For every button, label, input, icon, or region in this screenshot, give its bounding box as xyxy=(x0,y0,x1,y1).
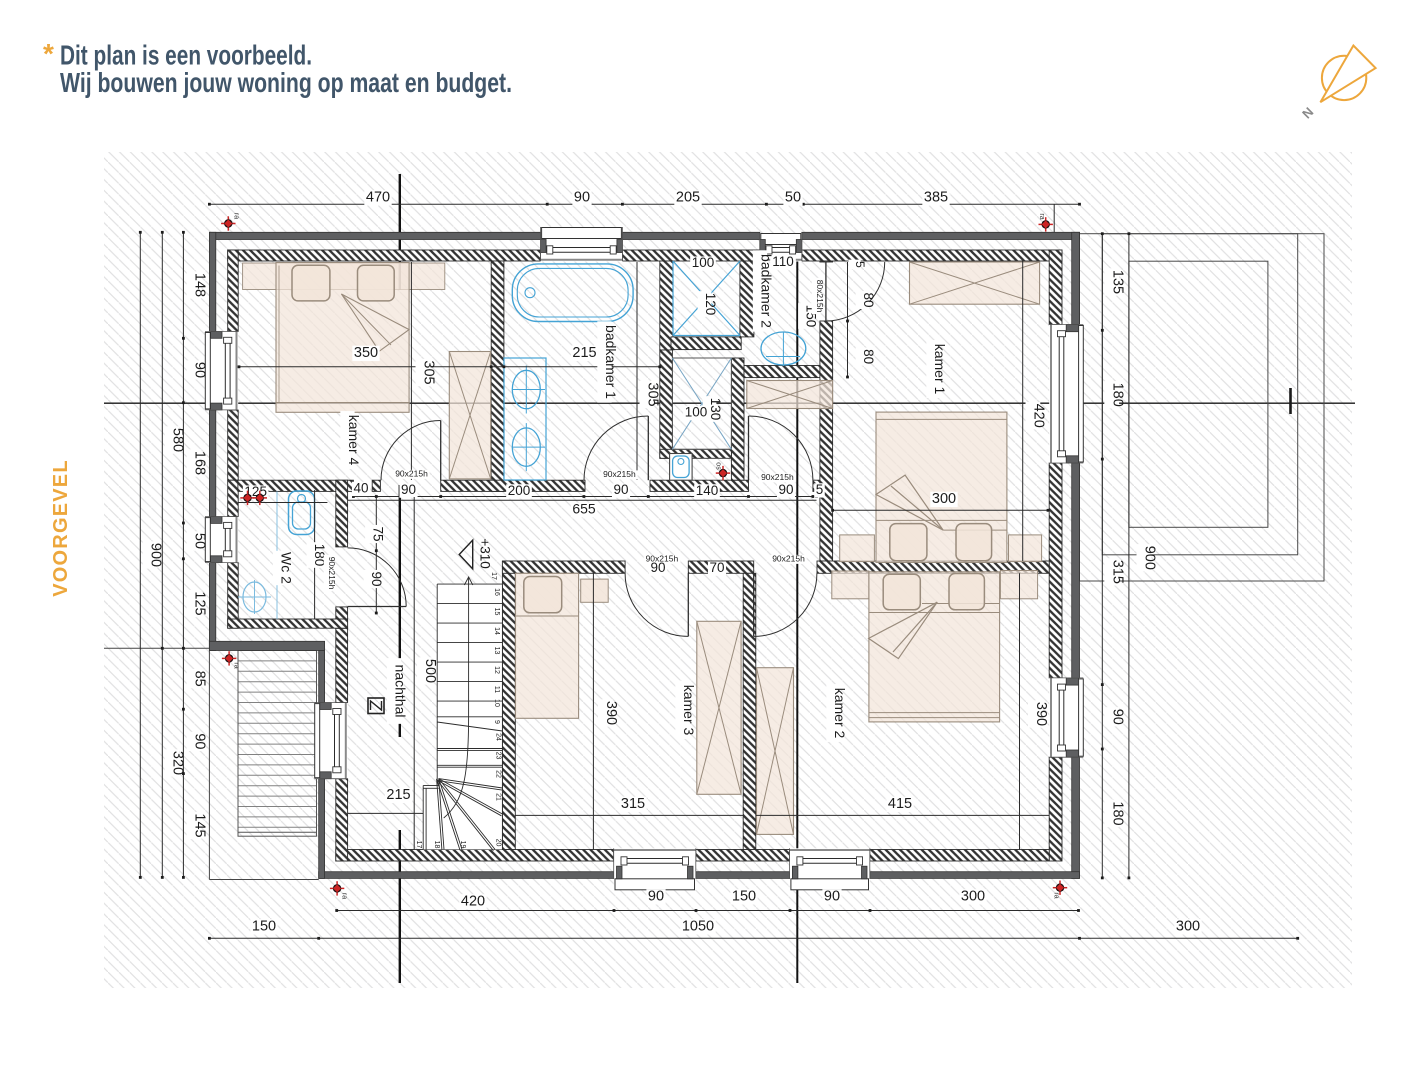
svg-text:15: 15 xyxy=(493,608,500,616)
svg-text:75: 75 xyxy=(371,526,386,541)
svg-text:90: 90 xyxy=(369,571,384,586)
svg-text:90x215h: 90x215h xyxy=(761,472,794,482)
svg-text:120: 120 xyxy=(703,293,718,316)
svg-text:140: 140 xyxy=(696,483,719,498)
svg-text:205: 205 xyxy=(676,190,700,206)
svg-text:90: 90 xyxy=(192,733,208,749)
svg-text:Wij bouwen jouw woning op maat: Wij bouwen jouw woning op maat en budget… xyxy=(60,67,512,98)
svg-text:os: os xyxy=(715,462,722,470)
svg-text:9: 9 xyxy=(493,720,500,724)
svg-text:90x215h: 90x215h xyxy=(395,469,428,479)
svg-text:ra: ra xyxy=(233,662,240,668)
svg-text:1050: 1050 xyxy=(682,919,714,935)
svg-text:VOORGEVEL: VOORGEVEL xyxy=(50,459,72,597)
svg-text:90: 90 xyxy=(401,482,416,497)
svg-text:168: 168 xyxy=(192,451,208,475)
svg-text:80x215h: 80x215h xyxy=(815,280,825,313)
svg-text:90x215h: 90x215h xyxy=(603,469,636,479)
svg-text:100: 100 xyxy=(692,255,715,270)
svg-text:13: 13 xyxy=(493,647,500,655)
svg-text:kamer 2: kamer 2 xyxy=(832,688,848,739)
svg-text:Dit plan is een voorbeeld.: Dit plan is een voorbeeld. xyxy=(60,40,312,71)
svg-text:90x215h: 90x215h xyxy=(772,554,805,564)
svg-text:100: 100 xyxy=(685,405,708,420)
svg-text:90: 90 xyxy=(648,889,664,905)
svg-text:Wc 2: Wc 2 xyxy=(279,552,295,584)
svg-text:ra: ra xyxy=(341,893,348,899)
svg-text:90x215h: 90x215h xyxy=(327,557,337,590)
svg-text:315: 315 xyxy=(621,796,645,812)
svg-text:900: 900 xyxy=(1142,546,1158,570)
svg-text:90: 90 xyxy=(778,482,793,497)
svg-text:655: 655 xyxy=(572,501,596,517)
svg-text:300: 300 xyxy=(932,491,956,507)
svg-text:145: 145 xyxy=(192,813,208,837)
svg-text:305: 305 xyxy=(421,360,437,384)
svg-text:350: 350 xyxy=(354,345,378,361)
svg-text:17: 17 xyxy=(490,572,497,580)
svg-text:badkamer 2: badkamer 2 xyxy=(759,254,775,328)
svg-text:kamer 4: kamer 4 xyxy=(346,415,362,466)
svg-text:ra: ra xyxy=(1053,892,1060,898)
svg-text:16: 16 xyxy=(493,588,500,596)
svg-text:18: 18 xyxy=(433,841,440,849)
svg-text:385: 385 xyxy=(924,190,948,206)
svg-text:390: 390 xyxy=(1033,702,1049,726)
svg-text:580: 580 xyxy=(170,428,186,452)
svg-text:215: 215 xyxy=(572,345,596,361)
svg-text:300: 300 xyxy=(961,889,985,905)
svg-text:200: 200 xyxy=(508,483,531,498)
svg-text:80: 80 xyxy=(861,349,876,364)
svg-text:900: 900 xyxy=(148,543,164,567)
svg-text:180: 180 xyxy=(1109,383,1125,407)
svg-text:20: 20 xyxy=(495,839,502,847)
svg-text:19: 19 xyxy=(459,841,466,849)
svg-text:320: 320 xyxy=(170,751,186,775)
svg-text:300: 300 xyxy=(1176,919,1200,935)
svg-text:420: 420 xyxy=(1031,404,1047,428)
svg-text:5: 5 xyxy=(853,261,867,268)
svg-text:135: 135 xyxy=(1109,270,1125,294)
svg-text:nachthal: nachthal xyxy=(393,665,409,718)
svg-text:12: 12 xyxy=(493,666,500,674)
svg-text:85: 85 xyxy=(192,671,208,687)
svg-text:*: * xyxy=(43,38,54,69)
svg-text:315: 315 xyxy=(1109,560,1125,584)
svg-text:21: 21 xyxy=(495,793,502,801)
svg-text:215: 215 xyxy=(386,787,410,803)
svg-text:badkamer 1: badkamer 1 xyxy=(603,325,619,399)
svg-text:90: 90 xyxy=(574,190,590,206)
svg-text:50: 50 xyxy=(785,190,801,206)
svg-text:148: 148 xyxy=(192,273,208,297)
svg-text:90: 90 xyxy=(650,560,665,575)
svg-text:10: 10 xyxy=(493,699,500,707)
svg-text:180: 180 xyxy=(1109,801,1125,825)
svg-text:90: 90 xyxy=(192,362,208,378)
svg-text:14: 14 xyxy=(493,627,500,635)
svg-text:90: 90 xyxy=(613,482,628,497)
svg-text:500: 500 xyxy=(422,659,438,683)
svg-text:390: 390 xyxy=(603,701,619,725)
svg-text:305: 305 xyxy=(645,382,661,406)
svg-text:kamer 3: kamer 3 xyxy=(681,685,697,736)
svg-text:80: 80 xyxy=(861,292,876,307)
svg-text:22: 22 xyxy=(495,770,502,778)
svg-text:kamer 1: kamer 1 xyxy=(932,344,948,395)
svg-text:90: 90 xyxy=(824,889,840,905)
svg-text:+310: +310 xyxy=(478,538,493,568)
svg-text:50: 50 xyxy=(192,533,208,549)
svg-text:90: 90 xyxy=(1109,709,1125,725)
svg-text:23: 23 xyxy=(495,752,502,760)
svg-text:11: 11 xyxy=(493,686,500,693)
svg-text:5: 5 xyxy=(816,482,824,497)
svg-text:40: 40 xyxy=(353,480,368,495)
svg-text:150: 150 xyxy=(252,919,276,935)
svg-text:420: 420 xyxy=(461,894,485,910)
svg-text:415: 415 xyxy=(888,796,912,812)
svg-text:125: 125 xyxy=(192,591,208,615)
svg-text:ra: ra xyxy=(1038,213,1045,219)
svg-text:24: 24 xyxy=(495,733,502,741)
svg-text:17: 17 xyxy=(415,841,422,849)
svg-text:470: 470 xyxy=(366,190,390,206)
svg-text:ra: ra xyxy=(233,213,240,219)
svg-text:130: 130 xyxy=(708,398,723,421)
svg-text:150: 150 xyxy=(732,889,756,905)
svg-text:70: 70 xyxy=(709,560,724,575)
